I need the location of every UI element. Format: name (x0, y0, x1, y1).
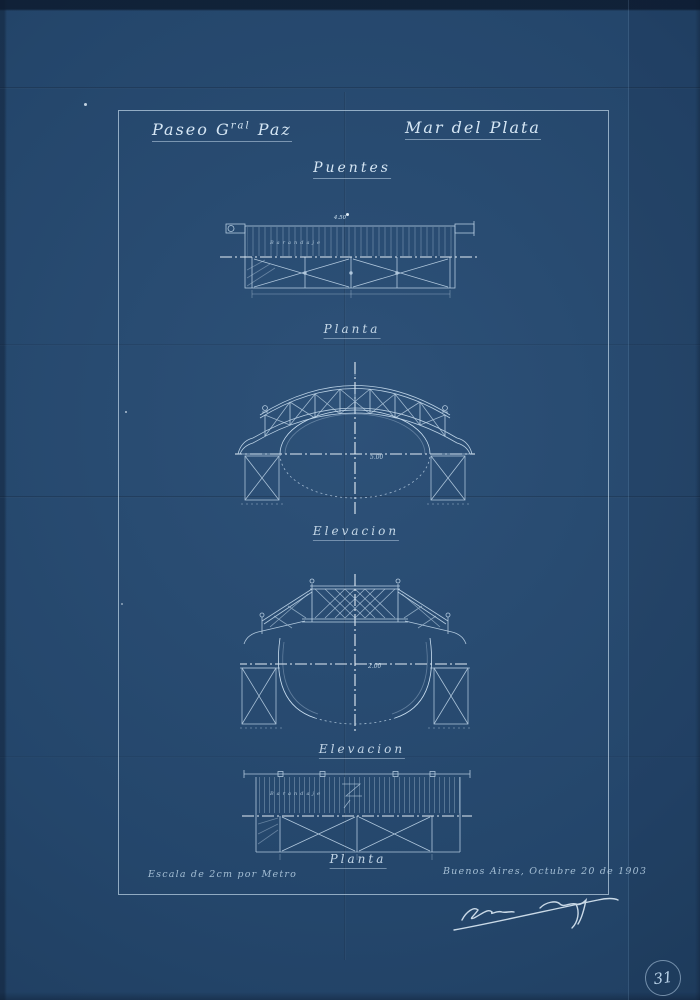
dimension-label: 4.50 (333, 215, 347, 221)
abutment-right (428, 668, 470, 728)
scale-note: Escala de 2cm por Metro (148, 869, 297, 880)
caption-plan-top: Planta (324, 322, 381, 336)
bracing-diagonals (282, 817, 430, 851)
title-left-superscript: ral (231, 121, 251, 132)
annotation-barandaje: Barandaje (269, 791, 323, 797)
ramp-right (398, 589, 466, 644)
ramp-left (244, 589, 312, 644)
fold-line-horizontal-1 (0, 87, 700, 89)
caption-elevation-2: Elevacion (319, 742, 405, 756)
drawing-elevation-ramp: 2.00 (240, 572, 470, 742)
annotation-barandaje: Barandaje (269, 240, 323, 246)
drawing-plan-bottom: Barandaje (242, 764, 472, 864)
finial (396, 579, 400, 583)
console-left (238, 438, 253, 454)
title-left-text-2: Paz (251, 120, 292, 139)
deck-plan (244, 770, 470, 860)
drawing-plan-top: 4.50 Barandaje (220, 210, 480, 310)
place-date: Buenos Aires, Octubre 20 de 1903 (443, 866, 647, 877)
drawing-elevation-arch: 5.00 (235, 362, 475, 517)
deck-plan (226, 221, 474, 298)
finial-right (443, 406, 448, 411)
abutment-right (427, 454, 472, 504)
caption-plan-bottom: Planta (330, 852, 387, 866)
abutment-left (240, 668, 282, 728)
paper-edge-shade (629, 0, 700, 1000)
title-left: Paseo Gral Paz (152, 120, 292, 139)
signature (448, 890, 638, 940)
abutment-left (238, 454, 283, 504)
blueprint-sheet: Paseo Gral Paz Mar del Plata Puentes (0, 0, 700, 1000)
dimension-label: 5.00 (370, 454, 384, 461)
finial-left (263, 406, 268, 411)
console-right (457, 438, 472, 454)
finial (310, 579, 314, 583)
paper-speck (84, 103, 87, 106)
dimension-label: 2.00 (367, 663, 382, 670)
caption-elevation-1: Elevacion (313, 524, 399, 538)
title-left-text: Paseo G (152, 120, 231, 139)
sheet-number: 31 (652, 968, 673, 988)
sheet-subtitle: Puentes (313, 160, 391, 176)
title-right: Mar del Plata (405, 118, 541, 137)
